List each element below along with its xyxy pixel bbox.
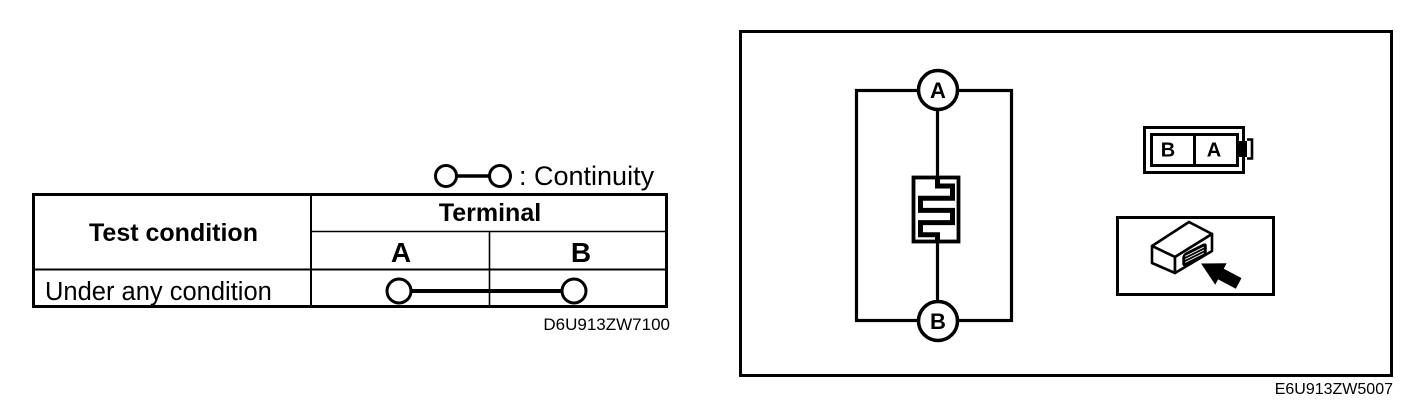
svg-text:B: B [930, 309, 946, 334]
svg-text:A: A [930, 78, 946, 103]
svg-text:Terminal: Terminal [439, 199, 541, 227]
svg-text:Under any condition: Under any condition [45, 278, 272, 306]
svg-text:B: B [1161, 140, 1175, 162]
svg-text:Test condition: Test condition [89, 219, 258, 247]
svg-text:A: A [1207, 140, 1221, 162]
svg-text:B: B [571, 237, 591, 268]
svg-text:: Continuity: : Continuity [519, 161, 655, 191]
svg-text:E6U913ZW5007: E6U913ZW5007 [1275, 381, 1393, 398]
svg-text:D6U913ZW7100: D6U913ZW7100 [543, 315, 670, 334]
svg-text:A: A [391, 237, 411, 268]
